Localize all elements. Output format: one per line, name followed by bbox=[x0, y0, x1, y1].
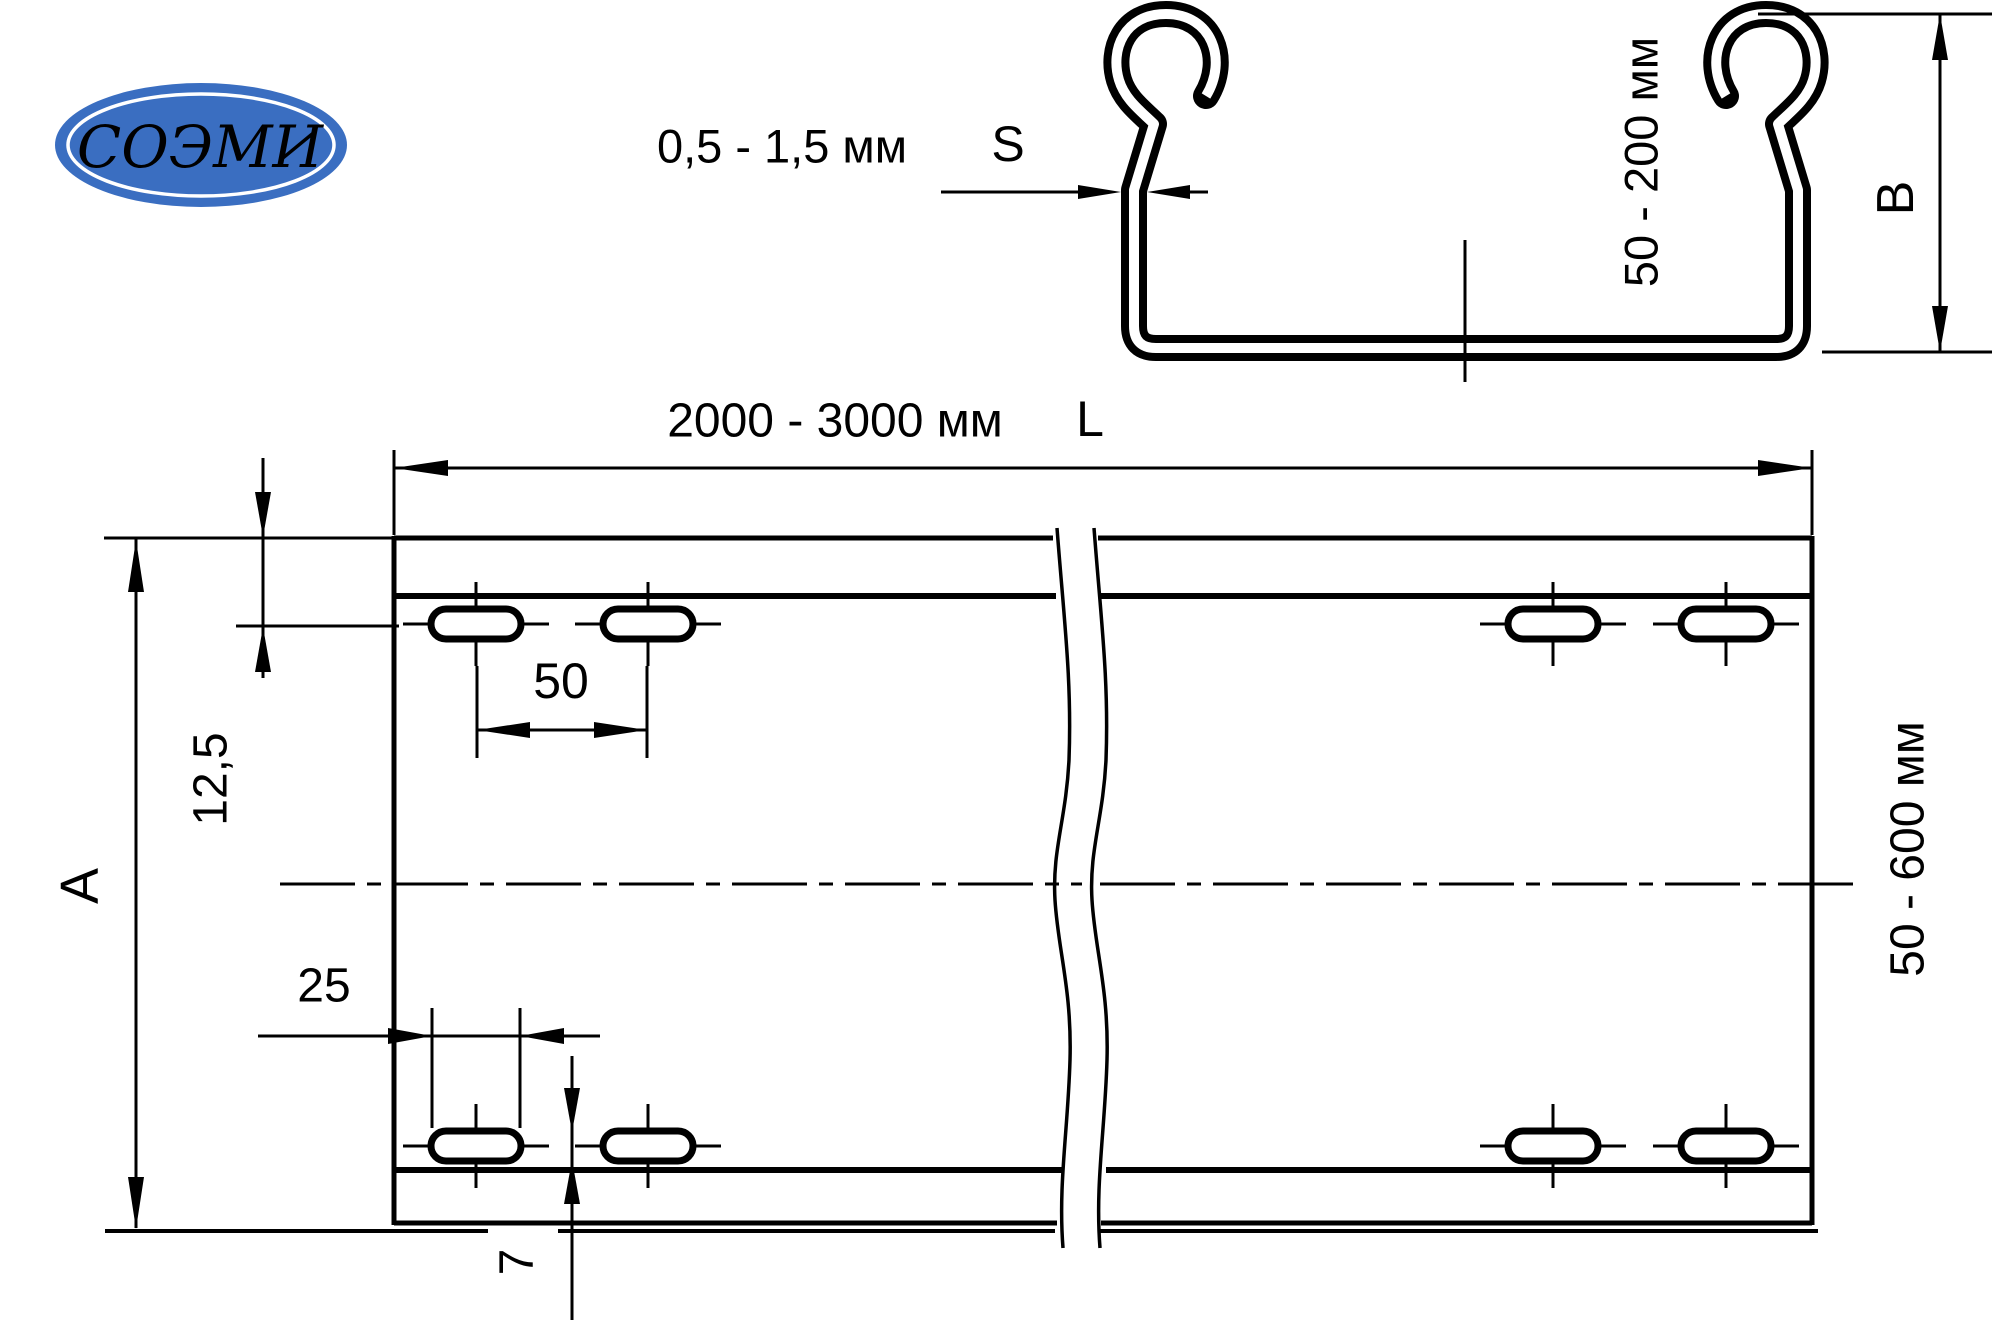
slot-hole bbox=[603, 609, 693, 639]
slot-hole bbox=[431, 609, 521, 639]
offset-arrow-down-icon bbox=[255, 492, 271, 537]
break-line-right bbox=[1092, 528, 1108, 1248]
slot-width-label: 7 bbox=[491, 1249, 544, 1276]
l-arrow-right-icon bbox=[1758, 460, 1812, 476]
wall-thickness-symbol-label: S bbox=[991, 116, 1024, 172]
length-range-label: 2000 - 3000 мм bbox=[667, 395, 1003, 448]
pitch-arrow-right-icon bbox=[594, 722, 647, 738]
dimension-slot-length: 25 bbox=[258, 960, 600, 1129]
a-arrow-up-icon bbox=[128, 540, 144, 592]
slot-hole bbox=[1681, 609, 1771, 639]
technical-drawing-cable-tray: СОЭМИ 0,5 - 1,5 мм S B 50 - 200 мм bbox=[0, 0, 2000, 1333]
slot-edge-offset-label: 12,5 bbox=[185, 732, 238, 825]
slotwidth-arrow-down-icon bbox=[564, 1088, 580, 1132]
l-arrow-left-icon bbox=[394, 460, 448, 476]
slot-hole bbox=[1508, 1131, 1598, 1161]
wall-thickness-range-label: 0,5 - 1,5 мм bbox=[657, 120, 907, 173]
profile-height-range-label: 50 - 200 мм bbox=[1615, 37, 1668, 287]
break-lines bbox=[1055, 528, 1108, 1248]
s-arrow-right-icon bbox=[1078, 185, 1121, 199]
logo-text: СОЭМИ bbox=[77, 113, 325, 181]
slot-hole bbox=[1508, 609, 1598, 639]
break-line-left bbox=[1055, 528, 1071, 1248]
slotwidth-arrow-up-icon bbox=[564, 1160, 580, 1204]
slot-pitch-label: 50 bbox=[533, 653, 589, 709]
dimension-slot-edge-offset: 12,5 bbox=[185, 458, 400, 826]
plan-view: 2000 - 3000 мм L A 50 - 600 мм 12,5 bbox=[50, 391, 1935, 1320]
slotlen-arrow-left-icon bbox=[520, 1028, 564, 1044]
offset-arrow-up-icon bbox=[255, 627, 271, 672]
dimension-slot-pitch: 50 bbox=[477, 653, 647, 758]
slot-hole bbox=[1681, 1131, 1771, 1161]
length-symbol-label: L bbox=[1076, 391, 1104, 447]
width-symbol-label: A bbox=[50, 868, 110, 904]
slotlen-arrow-right-icon bbox=[388, 1028, 432, 1044]
profile-height-symbol-label: B bbox=[1867, 181, 1925, 216]
b-arrow-up-icon bbox=[1932, 14, 1948, 60]
slot-hole bbox=[603, 1131, 693, 1161]
dimension-length: 2000 - 3000 мм L bbox=[394, 391, 1812, 535]
b-arrow-down-icon bbox=[1932, 306, 1948, 352]
a-arrow-down-icon bbox=[128, 1177, 144, 1229]
s-arrow-left-icon bbox=[1147, 185, 1190, 199]
pitch-arrow-left-icon bbox=[477, 722, 530, 738]
dimension-slot-width: 7 bbox=[491, 1056, 581, 1320]
width-range-label: 50 - 600 мм bbox=[1882, 721, 1935, 976]
slot-length-label: 25 bbox=[297, 960, 350, 1013]
company-logo: СОЭМИ bbox=[55, 83, 347, 207]
slot-hole bbox=[431, 1131, 521, 1161]
profile-view: 0,5 - 1,5 мм S B 50 - 200 мм bbox=[657, 14, 1992, 382]
